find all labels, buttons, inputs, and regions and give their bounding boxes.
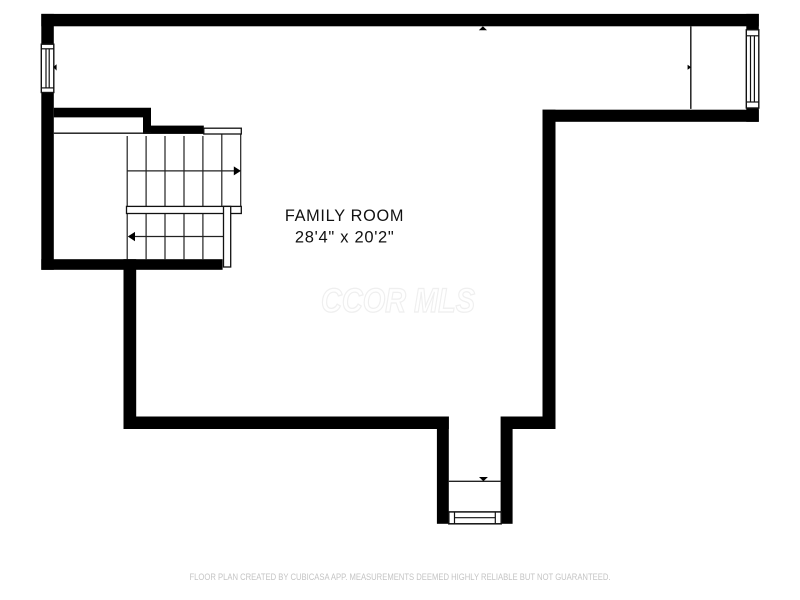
svg-text:28'4" x 20'2": 28'4" x 20'2" xyxy=(295,229,395,247)
svg-text:FLOOR PLAN CREATED BY CUBICASA: FLOOR PLAN CREATED BY CUBICASA APP. MEAS… xyxy=(190,571,611,582)
svg-text:CCOR MLS: CCOR MLS xyxy=(321,282,475,320)
svg-text:FAMILY ROOM: FAMILY ROOM xyxy=(285,207,404,225)
